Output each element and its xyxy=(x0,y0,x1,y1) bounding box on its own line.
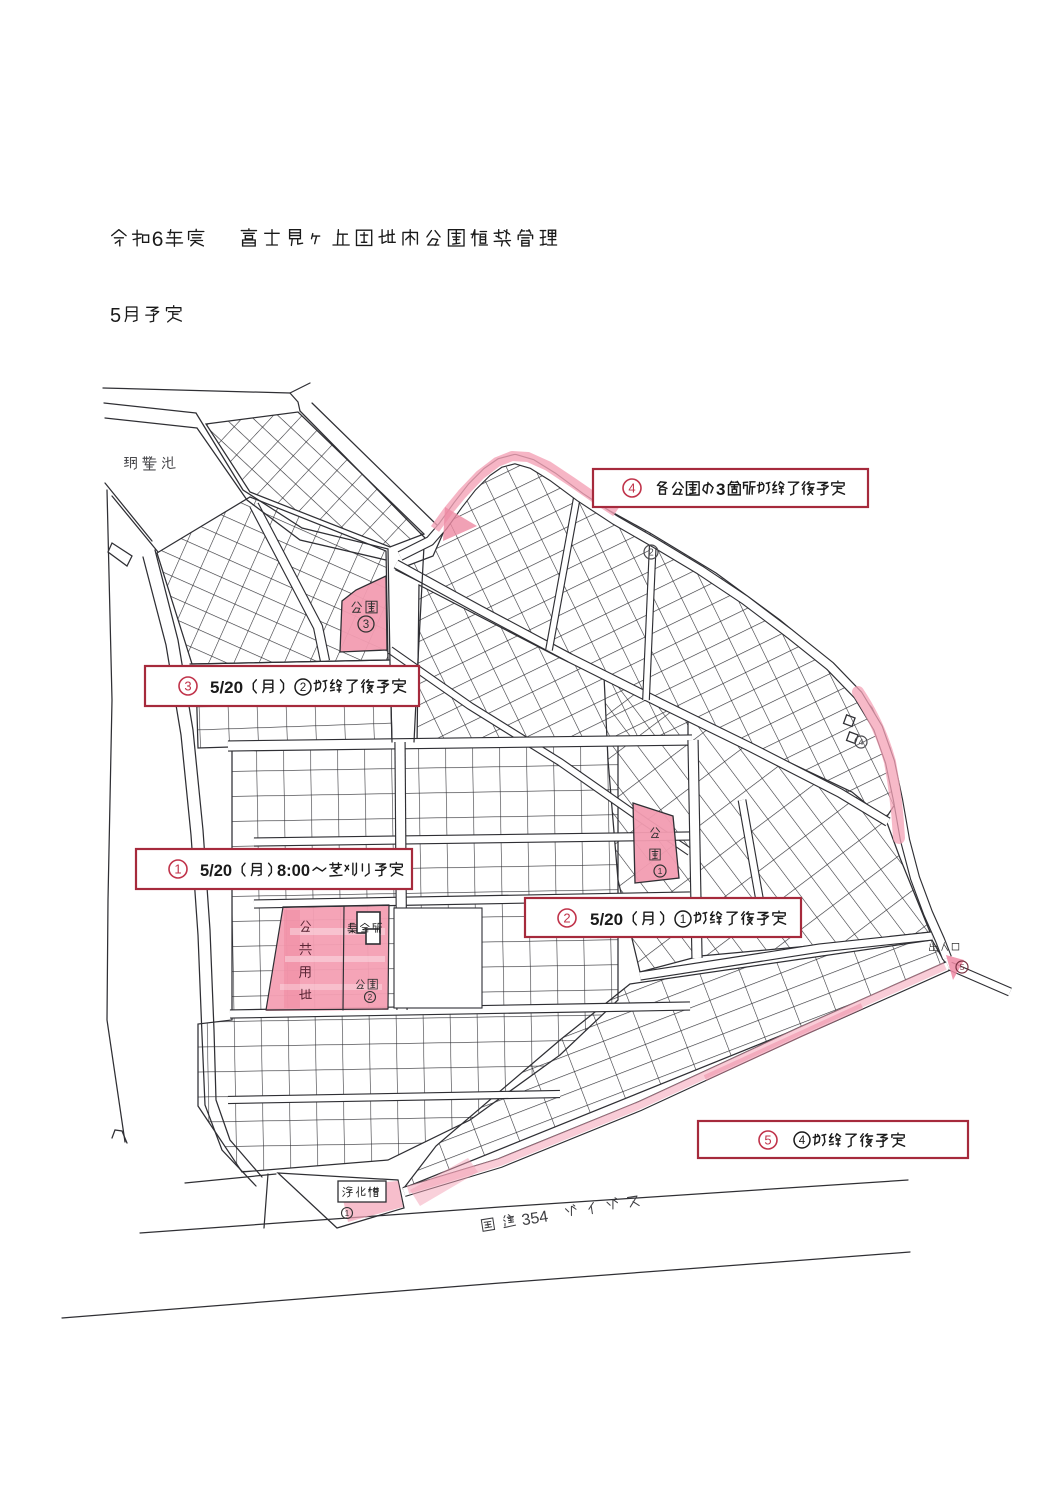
svg-text:3: 3 xyxy=(184,679,191,694)
svg-text:1: 1 xyxy=(345,1209,350,1218)
svg-text:3: 3 xyxy=(716,480,725,499)
svg-text:1: 1 xyxy=(680,913,686,926)
svg-text:5: 5 xyxy=(764,1133,771,1148)
svg-text:6: 6 xyxy=(152,228,164,251)
svg-text:1: 1 xyxy=(174,862,181,877)
svg-text:5: 5 xyxy=(960,962,965,972)
svg-text:5/20: 5/20 xyxy=(210,678,243,697)
svg-text:5: 5 xyxy=(110,305,121,327)
svg-text:4: 4 xyxy=(628,481,635,496)
svg-text:5/20: 5/20 xyxy=(200,862,232,880)
svg-text:1: 1 xyxy=(658,866,663,876)
svg-text:4: 4 xyxy=(859,737,864,747)
svg-text:8:00: 8:00 xyxy=(277,862,310,880)
svg-text:2: 2 xyxy=(368,993,373,1002)
svg-text:4: 4 xyxy=(799,1134,806,1147)
svg-text:2: 2 xyxy=(563,911,570,926)
svg-text:2: 2 xyxy=(648,548,654,559)
svg-text:5/20: 5/20 xyxy=(590,910,623,929)
svg-text:3: 3 xyxy=(363,618,369,631)
svg-text:2: 2 xyxy=(300,681,306,694)
